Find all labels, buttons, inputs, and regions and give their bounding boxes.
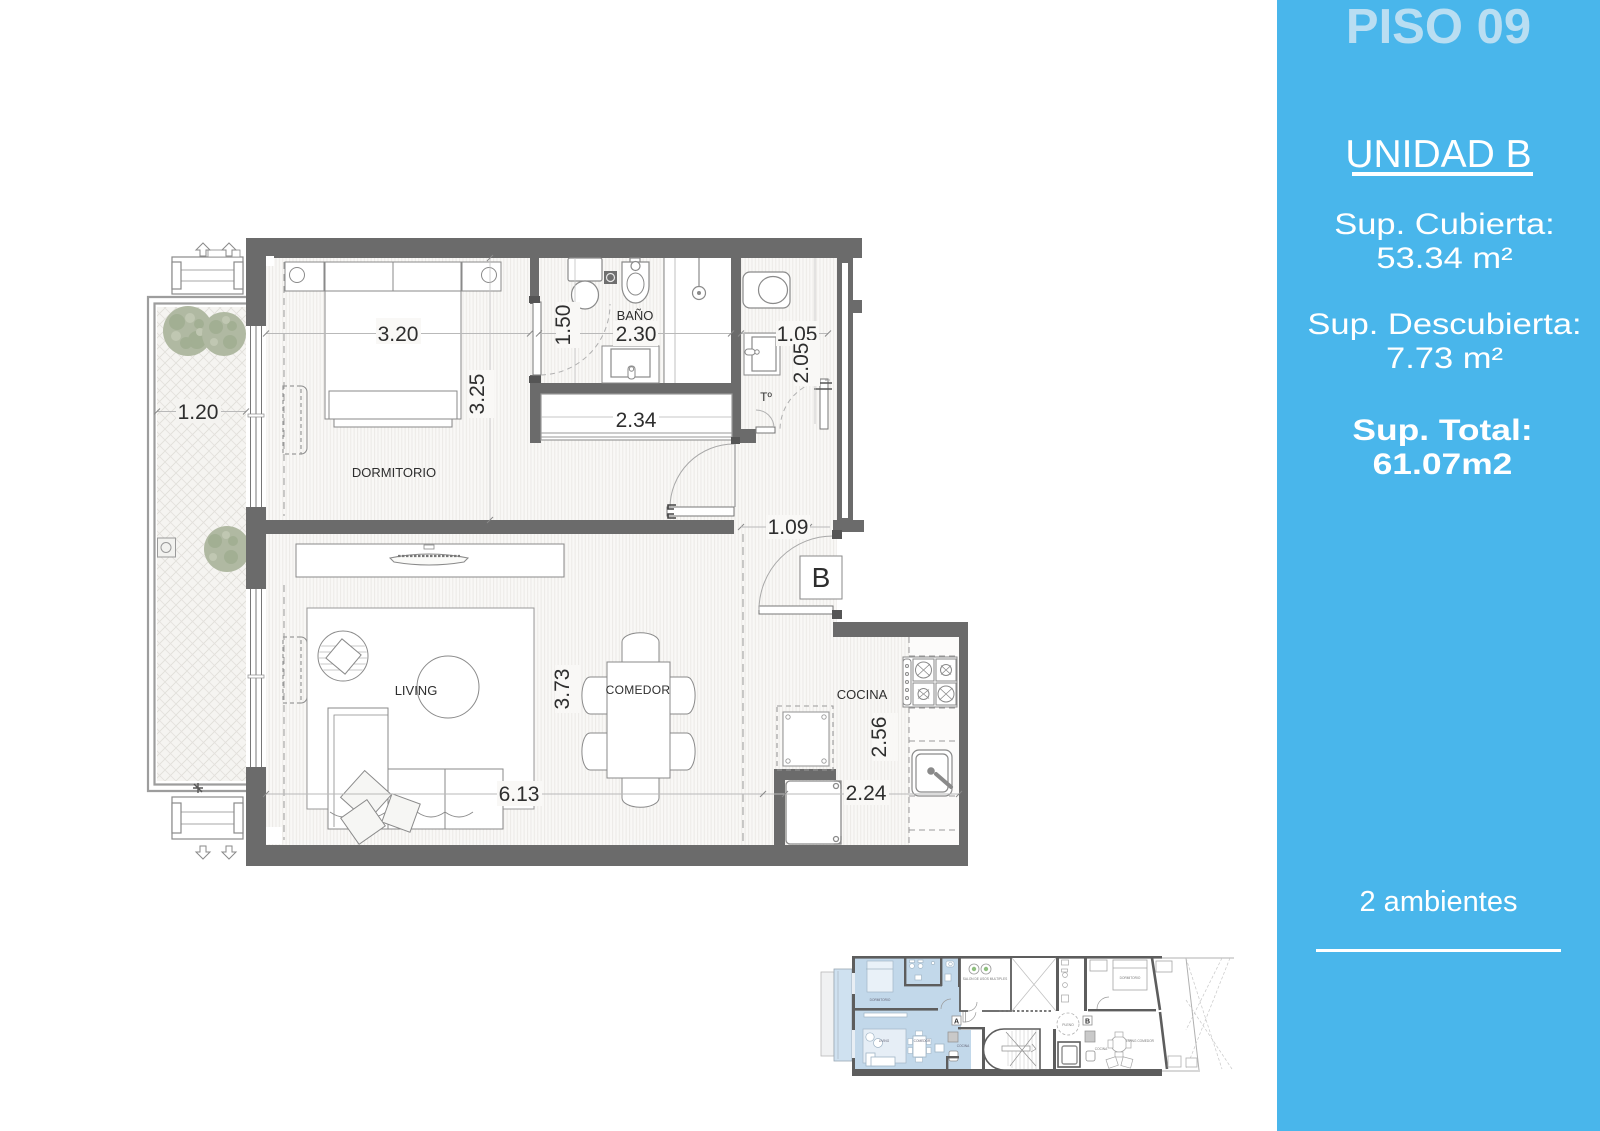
- svg-text:DORMITORIO: DORMITORIO: [1120, 976, 1141, 980]
- svg-text:PLENO: PLENO: [1062, 1023, 1074, 1027]
- svg-text:COCINA: COCINA: [837, 687, 888, 702]
- svg-text:1.20: 1.20: [178, 401, 219, 424]
- svg-text:6.13: 6.13: [499, 783, 540, 806]
- svg-text:2.56: 2.56: [868, 717, 891, 758]
- svg-text:1.50: 1.50: [552, 305, 575, 346]
- svg-text:COCINA: COCINA: [957, 1044, 970, 1048]
- svg-text:2.34: 2.34: [616, 409, 657, 432]
- svg-text:Tº: Tº: [760, 390, 772, 404]
- svg-text:3.20: 3.20: [378, 323, 419, 346]
- svg-text:COMEDOR: COMEDOR: [914, 1039, 931, 1043]
- svg-text:COCINA: COCINA: [1095, 1047, 1108, 1051]
- svg-text:DORMITORIO: DORMITORIO: [352, 465, 436, 480]
- svg-text:DORMITORIO: DORMITORIO: [870, 998, 891, 1002]
- svg-text:2.30: 2.30: [616, 323, 657, 346]
- svg-text:3.73: 3.73: [551, 669, 574, 710]
- svg-text:B: B: [1085, 1019, 1090, 1026]
- svg-text:2.24: 2.24: [846, 782, 887, 805]
- svg-text:B: B: [812, 562, 831, 593]
- svg-text:SALON DE USOS MULTIPLES: SALON DE USOS MULTIPLES: [963, 977, 1007, 981]
- svg-text:LIVING: LIVING: [879, 1039, 890, 1043]
- svg-text:3.25: 3.25: [466, 374, 489, 415]
- svg-text:2.05: 2.05: [790, 343, 813, 384]
- svg-text:BAÑO: BAÑO: [617, 308, 654, 323]
- svg-text:A: A: [954, 1019, 959, 1026]
- svg-text:LIVING COMEDOR: LIVING COMEDOR: [1126, 1039, 1155, 1043]
- svg-text:COMEDOR: COMEDOR: [606, 683, 671, 697]
- svg-text:1.09: 1.09: [768, 516, 809, 539]
- svg-text:LIVING: LIVING: [395, 683, 438, 698]
